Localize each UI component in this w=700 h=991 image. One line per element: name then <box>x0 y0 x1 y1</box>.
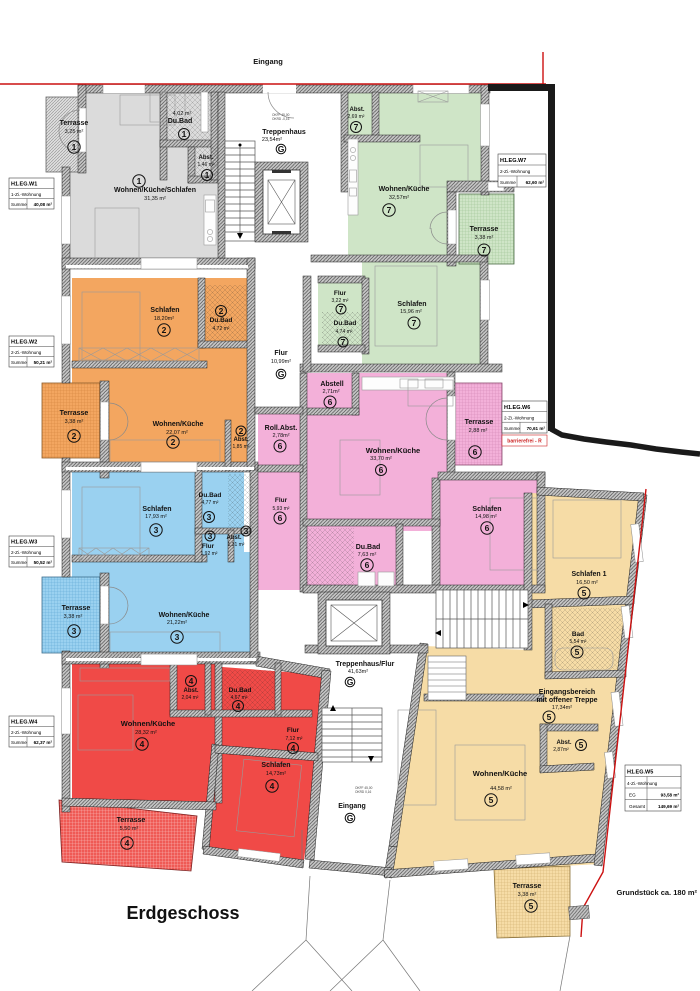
svg-text:G: G <box>278 144 285 154</box>
svg-text:1,46 m²: 1,46 m² <box>198 162 215 168</box>
svg-text:Abst.: Abst. <box>234 437 249 443</box>
svg-text:OKRD 0,16: OKRD 0,16 <box>355 790 372 794</box>
svg-text:70,61 m²: 70,61 m² <box>527 426 546 431</box>
svg-text:H1.EG.W7: H1.EG.W7 <box>500 158 526 164</box>
svg-text:3: 3 <box>72 626 77 636</box>
svg-text:3,25 m²: 3,25 m² <box>65 129 84 135</box>
svg-text:Du.Bad: Du.Bad <box>356 544 381 551</box>
svg-text:Schlafen 1: Schlafen 1 <box>571 571 606 578</box>
svg-text:G: G <box>278 369 285 379</box>
svg-text:1,31 m²: 1,31 m² <box>228 542 245 548</box>
svg-text:4: 4 <box>125 838 130 848</box>
svg-text:Terrasse: Terrasse <box>465 419 494 426</box>
svg-text:2,69 m²: 2,69 m² <box>348 114 365 120</box>
svg-text:4,74 m²: 4,74 m² <box>336 329 353 335</box>
svg-text:2,78m²: 2,78m² <box>272 433 289 439</box>
svg-text:7,63 m²: 7,63 m² <box>358 552 377 558</box>
svg-text:31,35 m²: 31,35 m² <box>144 196 166 202</box>
svg-text:Wohnen/Küche: Wohnen/Küche <box>121 719 175 728</box>
svg-text:Eingang: Eingang <box>253 57 283 66</box>
svg-text:Schlafen: Schlafen <box>397 301 426 308</box>
svg-text:barrierefrei - R: barrierefrei - R <box>507 439 542 445</box>
svg-text:62,60 m²: 62,60 m² <box>526 180 545 185</box>
svg-text:2-Zi.-Wohnung: 2-Zi.-Wohnung <box>11 350 42 355</box>
svg-text:33,70 m²: 33,70 m² <box>370 456 392 462</box>
svg-text:Terrasse: Terrasse <box>470 226 499 233</box>
svg-text:23,54m²: 23,54m² <box>262 137 282 143</box>
svg-text:1: 1 <box>205 170 210 180</box>
svg-text:Summe: Summe <box>504 426 520 431</box>
svg-text:2: 2 <box>72 431 77 441</box>
svg-text:Grundstück ca. 180 m²: Grundstück ca. 180 m² <box>617 888 698 897</box>
svg-text:93,58 m²: 93,58 m² <box>661 792 680 797</box>
svg-text:2: 2 <box>219 306 224 316</box>
svg-text:Summe: Summe <box>11 360 27 365</box>
svg-text:6: 6 <box>328 397 333 407</box>
svg-text:Terrasse: Terrasse <box>60 410 89 417</box>
svg-text:7: 7 <box>341 337 346 347</box>
svg-text:2: 2 <box>171 437 176 447</box>
svg-text:2,71m²: 2,71m² <box>322 389 339 395</box>
svg-text:H1.EG.W4: H1.EG.W4 <box>11 720 38 726</box>
svg-text:Abst.: Abst. <box>350 107 365 113</box>
svg-text:7: 7 <box>387 205 392 215</box>
svg-text:16,50 m²: 16,50 m² <box>576 580 598 586</box>
svg-text:Du.Bad: Du.Bad <box>210 317 233 324</box>
svg-text:5: 5 <box>575 647 580 657</box>
svg-text:3: 3 <box>207 512 212 522</box>
svg-text:7: 7 <box>412 318 417 328</box>
svg-text:6: 6 <box>485 523 490 533</box>
svg-text:Bad: Bad <box>572 631 584 638</box>
svg-text:Flur: Flur <box>275 497 288 504</box>
svg-text:Wohnen/Küche: Wohnen/Küche <box>473 769 527 778</box>
svg-text:Roll.Abst.: Roll.Abst. <box>265 425 298 432</box>
svg-text:6: 6 <box>473 447 478 457</box>
svg-text:Du.Bad: Du.Bad <box>229 687 252 694</box>
svg-text:3,38 m²: 3,38 m² <box>64 614 83 620</box>
svg-text:1: 1 <box>137 176 142 186</box>
svg-text:41,63m²: 41,63m² <box>348 669 368 675</box>
svg-text:21,22m²: 21,22m² <box>167 620 187 626</box>
svg-text:Flur: Flur <box>334 290 347 297</box>
svg-text:5: 5 <box>529 901 534 911</box>
svg-text:H1.EG.W3: H1.EG.W3 <box>11 540 37 546</box>
svg-text:15,96 m²: 15,96 m² <box>400 309 422 315</box>
svg-text:4,77 m²: 4,77 m² <box>202 500 219 506</box>
svg-text:Eingangsbereich: Eingangsbereich <box>539 689 595 696</box>
svg-text:4: 4 <box>236 701 241 711</box>
svg-text:22,07 m²: 22,07 m² <box>166 430 188 436</box>
svg-text:Wohnen/Küche: Wohnen/Küche <box>366 446 420 455</box>
svg-text:4,02 m²: 4,02 m² <box>173 111 192 117</box>
svg-text:2: 2 <box>162 325 167 335</box>
svg-text:18,20m²: 18,20m² <box>154 316 174 322</box>
svg-text:Flur: Flur <box>287 727 300 734</box>
svg-text:Wohnen/Küche: Wohnen/Küche <box>159 612 210 619</box>
svg-text:Flur: Flur <box>202 543 215 550</box>
svg-text:50,52 m²: 50,52 m² <box>34 560 53 565</box>
svg-text:5,93 m²: 5,93 m² <box>273 506 290 512</box>
svg-text:2,04 m²: 2,04 m² <box>182 695 199 701</box>
svg-text:5,50 m²: 5,50 m² <box>120 826 139 832</box>
svg-text:3,38 m²: 3,38 m² <box>475 235 494 241</box>
svg-text:1-Zi.-Wohnung: 1-Zi.-Wohnung <box>11 192 42 197</box>
svg-text:Abst.: Abst. <box>199 155 214 161</box>
svg-text:Treppenhaus/Flur: Treppenhaus/Flur <box>336 661 395 668</box>
svg-text:Wohnen/Küche: Wohnen/Küche <box>379 186 430 193</box>
svg-text:4: 4 <box>140 739 145 749</box>
svg-text:3,38 m²: 3,38 m² <box>518 892 537 898</box>
svg-text:2-Zi.-Wohnung: 2-Zi.-Wohnung <box>504 415 535 420</box>
svg-text:2-Zi.-Wohnung: 2-Zi.-Wohnung <box>500 169 531 174</box>
svg-text:H1.EG.W5: H1.EG.W5 <box>627 769 653 775</box>
svg-text:149,69 m²: 149,69 m² <box>658 804 679 809</box>
svg-text:3: 3 <box>244 526 249 536</box>
svg-text:2-Zi.-Wohnung: 2-Zi.-Wohnung <box>11 730 42 735</box>
svg-text:4: 4 <box>291 743 296 753</box>
svg-text:G: G <box>347 677 354 687</box>
svg-text:OKRD -0,16: OKRD -0,16 <box>272 117 290 121</box>
svg-text:17,34m²: 17,34m² <box>552 705 572 711</box>
svg-text:1: 1 <box>72 142 77 152</box>
svg-text:Schlafen: Schlafen <box>150 307 179 314</box>
svg-text:Terrasse: Terrasse <box>513 883 542 890</box>
svg-text:5: 5 <box>582 588 587 598</box>
svg-text:2,87m²: 2,87m² <box>553 747 569 753</box>
svg-text:4,72 m²: 4,72 m² <box>213 326 230 332</box>
svg-text:7: 7 <box>354 122 359 132</box>
svg-text:6: 6 <box>379 465 384 475</box>
svg-text:40,08 m²: 40,08 m² <box>34 202 53 207</box>
svg-text:Summe: Summe <box>11 560 27 565</box>
svg-text:4-Zi.-Wohnung: 4-Zi.-Wohnung <box>627 781 658 786</box>
svg-text:Schlafen: Schlafen <box>142 506 171 513</box>
svg-text:Schlafen: Schlafen <box>261 762 290 769</box>
svg-text:Schlafen: Schlafen <box>472 506 501 513</box>
svg-text:7,12 m²: 7,12 m² <box>286 736 303 742</box>
svg-text:Du.Bad: Du.Bad <box>334 320 357 327</box>
svg-text:10,99m²: 10,99m² <box>271 359 291 365</box>
svg-text:2,88 m²: 2,88 m² <box>469 428 488 434</box>
svg-text:50,21 m²: 50,21 m² <box>34 360 53 365</box>
svg-text:3: 3 <box>208 531 213 541</box>
svg-text:Wohnen/Küche: Wohnen/Küche <box>153 421 204 428</box>
svg-text:5,54 m²: 5,54 m² <box>570 639 587 645</box>
svg-text:Abstell: Abstell <box>320 381 343 388</box>
svg-text:17,93 m²: 17,93 m² <box>145 514 167 520</box>
svg-text:14,73m²: 14,73m² <box>266 771 286 777</box>
svg-text:7: 7 <box>482 245 487 255</box>
svg-text:1,85 m²: 1,85 m² <box>233 444 250 450</box>
svg-text:Summe: Summe <box>11 202 27 207</box>
svg-text:Gesamt: Gesamt <box>629 804 646 809</box>
svg-text:EG: EG <box>629 792 636 797</box>
svg-text:5: 5 <box>547 712 552 722</box>
svg-text:44,58 m²: 44,58 m² <box>490 786 512 792</box>
svg-text:6: 6 <box>278 513 283 523</box>
svg-text:1: 1 <box>182 129 187 139</box>
svg-text:32,57m²: 32,57m² <box>389 195 409 201</box>
svg-text:2-Zi.-Wohnung: 2-Zi.-Wohnung <box>11 550 42 555</box>
svg-text:Abst.: Abst. <box>557 740 572 746</box>
svg-text:Terrasse: Terrasse <box>60 120 89 127</box>
svg-text:Summe: Summe <box>11 740 27 745</box>
svg-text:Flur: Flur <box>274 350 287 357</box>
svg-text:2: 2 <box>239 426 244 436</box>
svg-text:Summe: Summe <box>500 180 516 185</box>
svg-text:Wohnen/Küche/Schlafen: Wohnen/Küche/Schlafen <box>114 187 196 194</box>
svg-text:Du.Bad: Du.Bad <box>168 118 193 125</box>
svg-text:7: 7 <box>339 304 344 314</box>
svg-text:Terrasse: Terrasse <box>117 817 146 824</box>
svg-text:4: 4 <box>270 781 275 791</box>
svg-text:H1.EG.W1: H1.EG.W1 <box>11 182 37 188</box>
svg-text:Du.Bad: Du.Bad <box>199 492 222 499</box>
svg-text:3: 3 <box>175 632 180 642</box>
svg-text:Eingang: Eingang <box>338 803 366 810</box>
svg-text:6: 6 <box>365 560 370 570</box>
svg-text:3,38 m²: 3,38 m² <box>65 419 84 425</box>
svg-text:Treppenhaus: Treppenhaus <box>262 129 306 136</box>
svg-text:mit offener Treppe: mit offener Treppe <box>536 697 597 704</box>
svg-text:3: 3 <box>154 525 159 535</box>
svg-text:5: 5 <box>489 795 494 805</box>
svg-text:14,98 m²: 14,98 m² <box>475 514 497 520</box>
svg-text:Abst.: Abst. <box>184 688 199 694</box>
svg-text:Erdgeschoss: Erdgeschoss <box>126 903 239 923</box>
svg-text:Terrasse: Terrasse <box>62 605 91 612</box>
svg-text:4: 4 <box>189 676 194 686</box>
svg-text:62,37 m²: 62,37 m² <box>34 740 53 745</box>
svg-text:5: 5 <box>579 740 584 750</box>
svg-text:G: G <box>347 813 354 823</box>
svg-text:28,32 m²: 28,32 m² <box>135 730 157 736</box>
svg-text:H1.EG.W2: H1.EG.W2 <box>11 340 37 346</box>
svg-text:H1.EG.W6: H1.EG.W6 <box>504 405 530 411</box>
svg-text:Abst.: Abst. <box>227 535 242 541</box>
svg-text:1,92 m²: 1,92 m² <box>201 551 218 557</box>
svg-text:6: 6 <box>278 441 283 451</box>
